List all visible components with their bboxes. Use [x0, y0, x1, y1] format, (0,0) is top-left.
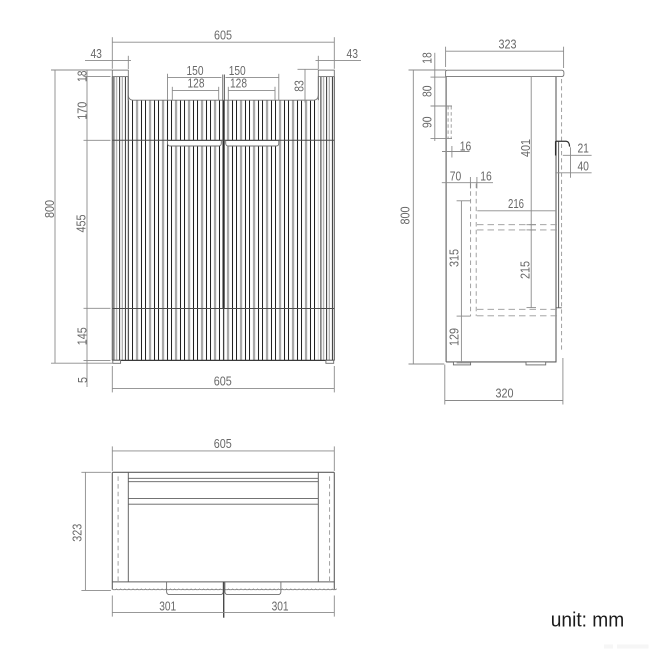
- svg-text:455: 455: [74, 215, 89, 233]
- svg-text:605: 605: [214, 436, 232, 451]
- svg-text:43: 43: [90, 46, 102, 61]
- svg-text:301: 301: [159, 598, 176, 613]
- svg-text:90: 90: [419, 117, 434, 129]
- svg-text:unit: mm: unit: mm: [551, 609, 625, 632]
- svg-text:70: 70: [450, 169, 462, 184]
- svg-text:128: 128: [230, 76, 247, 91]
- svg-text:18: 18: [419, 52, 434, 64]
- svg-text:215: 215: [518, 261, 533, 279]
- svg-text:800: 800: [42, 200, 57, 218]
- svg-text:800: 800: [398, 207, 413, 225]
- svg-text:323: 323: [70, 524, 85, 542]
- svg-text:83: 83: [292, 80, 307, 92]
- svg-text:145: 145: [74, 327, 89, 345]
- svg-text:18: 18: [74, 70, 89, 82]
- svg-text:21: 21: [577, 141, 589, 156]
- svg-text:40: 40: [577, 158, 589, 173]
- svg-text:401: 401: [518, 139, 533, 157]
- svg-text:16: 16: [460, 138, 472, 153]
- svg-text:5: 5: [75, 377, 90, 383]
- svg-text:301: 301: [272, 598, 289, 613]
- svg-text:43: 43: [347, 46, 359, 61]
- svg-text:320: 320: [496, 386, 514, 401]
- svg-text:605: 605: [214, 27, 232, 42]
- svg-text:129: 129: [447, 328, 462, 346]
- svg-text:128: 128: [188, 76, 205, 91]
- svg-text:170: 170: [74, 102, 89, 120]
- svg-text:323: 323: [499, 36, 517, 51]
- svg-text:16: 16: [480, 169, 492, 184]
- svg-text:80: 80: [419, 85, 434, 97]
- svg-text:605: 605: [214, 374, 232, 389]
- svg-text:315: 315: [447, 249, 462, 267]
- svg-text:216: 216: [508, 196, 524, 211]
